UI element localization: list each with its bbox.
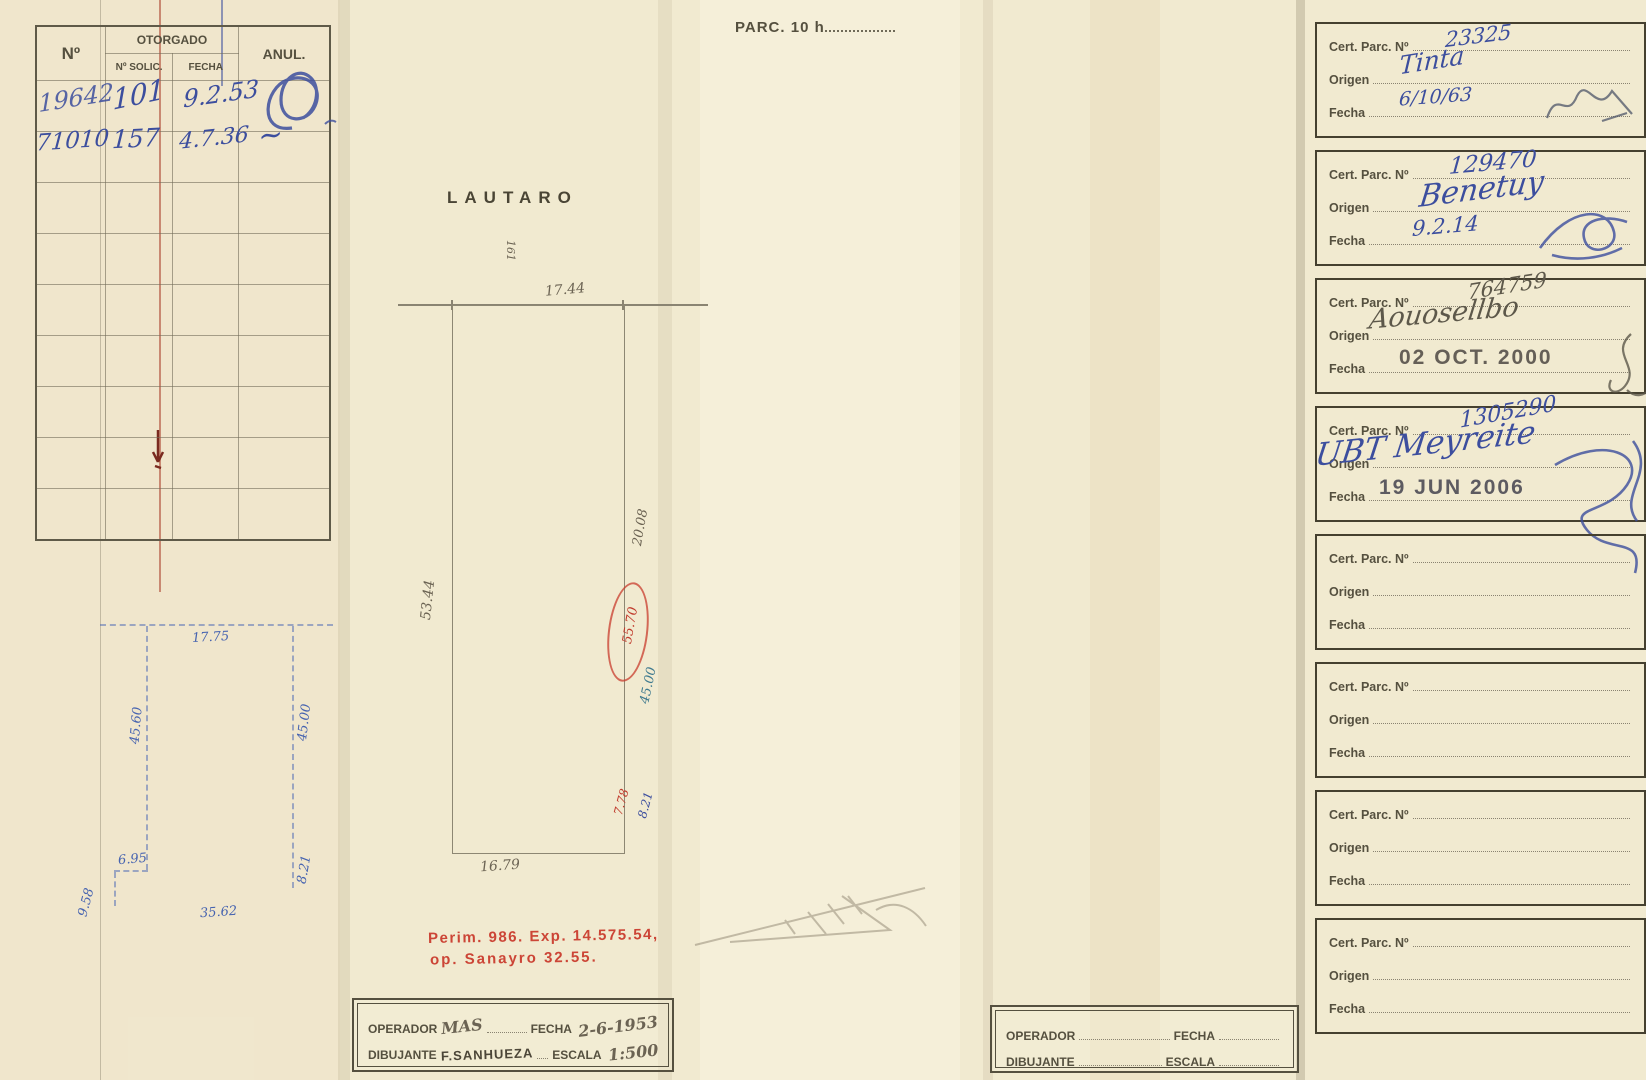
dotted-line [1369,616,1630,629]
page-title-text: PARC. 10 h [735,19,825,36]
col-header-otorgado: OTORGADO [105,26,238,54]
signature-scribble [1542,76,1637,131]
paper-fold [338,0,350,1080]
cert-box-8: Cert. Parc. Nº Origen Fecha [1315,918,1646,1034]
back-value: 16.79 [479,857,520,876]
dotted-line [1373,711,1630,724]
cert-label: Cert. Parc. Nº [1329,936,1409,950]
cert-label: Cert. Parc. Nº [1329,680,1409,694]
cert-label: Cert. Parc. Nº [1329,40,1409,54]
sketch-front-value: 17.75 [192,629,230,646]
sketch-back-value: 35.62 [200,904,238,922]
dotted-line [1413,550,1630,563]
dotted-line [1219,1053,1279,1066]
cert-label: Cert. Parc. Nº [1329,808,1409,822]
col-header-fecha: FECHA [173,54,239,81]
fecha-label: Fecha [1329,106,1365,120]
sketch-left-line [146,626,148,870]
dotted-line [1369,1000,1630,1013]
dibujante-value: F.SANHUEZA [440,1045,533,1063]
operador-label: OPERADOR [368,1022,437,1036]
cert-box-1: Cert. Parc. Nº Origen Fecha 23325 Tinta … [1315,22,1646,138]
right-lower-value: 45.00 [637,666,659,706]
origen-label: Origen [1329,841,1369,855]
cert-box-6: Cert. Parc. Nº Origen Fecha [1315,662,1646,778]
fecha-label: Fecha [1329,362,1365,376]
table-row [36,489,330,541]
origen-label: Origen [1329,201,1369,215]
cert-box-7: Cert. Parc. Nº Origen Fecha [1315,790,1646,906]
cert-box-5: Cert. Parc. Nº Origen Fecha [1315,534,1646,650]
origen-label: Origen [1329,585,1369,599]
dotted-line [1079,1027,1169,1040]
paper-streak [1090,0,1160,1080]
operator-box-right-inner: OPERADOR FECHA DIBUJANTE ESCALA [995,1010,1294,1068]
street-number: 161 [504,240,517,261]
left-side-value: 53.44 [418,579,438,621]
paper-fold [658,0,672,1080]
escala-label: ESCALA [552,1048,601,1062]
table-row [36,438,330,489]
fecha-stamp: 02 OCT. 2000 [1399,346,1553,370]
sketch-left-value: 45.60 [128,706,146,744]
operador-label: OPERADOR [1006,1029,1075,1043]
fecha-label: FECHA [531,1022,572,1036]
cert-label: Cert. Parc. Nº [1329,168,1409,182]
dotted-line [537,1046,548,1059]
escala-value: 1:500 [607,1040,659,1064]
street-name: LAUTARO [447,188,578,208]
dotted-line [1369,744,1630,757]
paper-fold [983,0,993,1080]
sketch-left-bottom-value: 9.58 [75,887,97,919]
front-value: 17.44 [544,280,585,299]
table-row [36,285,330,336]
anul-scribble [237,58,337,138]
dibujante-label: DIBUJANTE [1006,1055,1075,1069]
dotted-line [1413,934,1630,947]
origen-label: Origen [1329,713,1369,727]
operador-value: MAS [440,1015,483,1038]
dotted-line [1413,678,1630,691]
operator-box-right: OPERADOR FECHA DIBUJANTE ESCALA [990,1005,1299,1073]
sketch-left-lower-line [114,872,116,906]
fecha-label: Fecha [1329,746,1365,760]
fecha-label: Fecha [1329,234,1365,248]
sketch-right-value: 45.00 [295,703,314,742]
dotted-line [1413,806,1630,819]
table-row [36,183,330,234]
origen-label: Origen [1329,969,1369,983]
right-upper-value: 20.08 [630,508,651,547]
pencil-sketch [690,850,960,980]
operator-box-left-inner: OPERADOR MAS FECHA 2-6-1953 DIBUJANTE F.… [357,1003,669,1067]
dotted-line [487,1020,527,1033]
origen-label: Origen [1329,73,1369,87]
table-row [36,387,330,438]
sketch-right-line [292,626,294,888]
dotted-line [1373,839,1630,852]
title-dotted-line [825,18,895,32]
cert-label: Cert. Parc. Nº [1329,552,1409,566]
entry-anul-2: ~ [256,116,286,154]
fecha-label: Fecha [1329,1002,1365,1016]
paper-fold [1296,0,1305,1080]
parcel-outline [452,305,625,854]
fecha-label: Fecha [1329,618,1365,632]
red-note-line1: Perim. 986. Exp. 14.575.54, [428,926,659,947]
table-row [36,336,330,387]
table-row [36,234,330,285]
sketch-right-bottom-value: 8.21 [295,854,315,885]
entry-no-2: 71010 [35,125,110,156]
dibujante-label: DIBUJANTE [368,1048,437,1062]
signature-scribble [1532,200,1637,265]
signature-scribble [1599,330,1646,405]
dotted-line [1219,1027,1279,1040]
dotted-line [1373,583,1630,596]
back-right-blue-value: 8.21 [635,790,655,819]
origen-label: Origen [1329,329,1369,343]
dotted-line [1369,872,1630,885]
cadastral-record-card: PARC. 10 h Nº OTORGADO ANUL. Nº SOLIC. F… [0,0,1646,1080]
sketch-step-value: 6.95 [117,851,147,868]
fecha-stamp: 19 JUN 2006 [1379,476,1525,500]
red-note-line2: op. Sanayro 32.55. [430,949,598,969]
cert-box-3: Cert. Parc. Nº Origen Fecha 764759 Aouos… [1315,278,1646,394]
sketch-front-line [100,624,333,626]
sketch-step-line [114,870,148,872]
entry-solic-2: 157 [111,123,160,155]
operator-box-left: OPERADOR MAS FECHA 2-6-1953 DIBUJANTE F.… [352,998,674,1072]
fecha-label: FECHA [1174,1029,1215,1043]
cert-box-4: Cert. Parc. Nº Origen Fecha 1305290 UBT … [1315,406,1646,522]
col-header-no: Nº [36,26,105,81]
fecha-label: Fecha [1329,874,1365,888]
fecha-label: Fecha [1329,490,1365,504]
page-title: PARC. 10 h [735,18,895,36]
dotted-line [1373,967,1630,980]
dotted-line [1079,1053,1162,1066]
cert-box-2: Cert. Parc. Nº Origen Fecha 129470 Benet… [1315,150,1646,266]
escala-label: ESCALA [1166,1055,1215,1069]
